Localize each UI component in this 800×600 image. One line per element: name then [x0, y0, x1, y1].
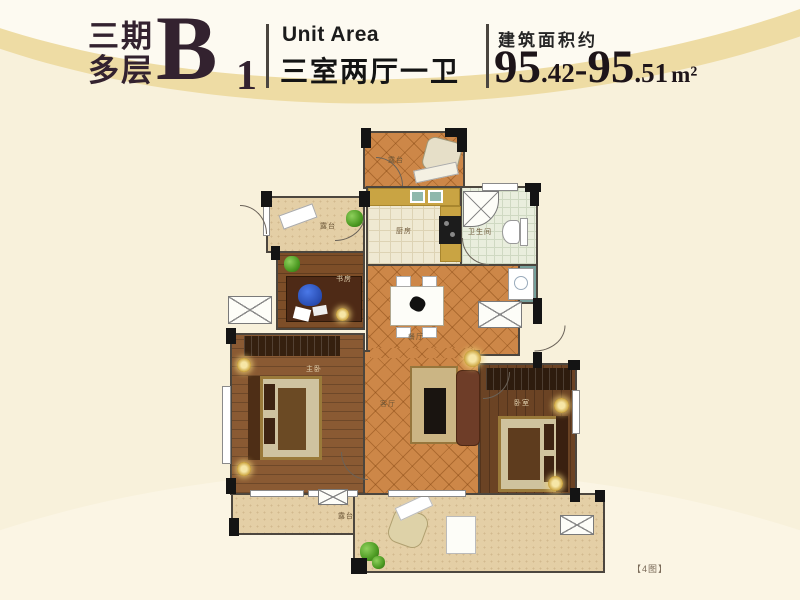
wall-corner: [570, 488, 580, 502]
entry-jamb: [533, 352, 542, 368]
wall-corner: [530, 186, 539, 206]
label-terrace-top: 露台: [388, 155, 404, 165]
hall-junction-patch: [370, 348, 474, 358]
study-plant-icon: [284, 256, 300, 272]
master-pillow-icon: [264, 384, 275, 410]
header-divider-2: [486, 24, 489, 88]
wall-corner: [261, 191, 272, 207]
label-master-bedroom: 主卧: [306, 364, 322, 374]
dining-chair4-icon: [422, 327, 437, 338]
header-divider-1: [266, 24, 269, 88]
bedroom2-lamp-icon: [554, 398, 569, 413]
master-window-south1: [250, 490, 304, 497]
study-bay-window: [228, 296, 272, 324]
unit-number: 1: [236, 52, 257, 100]
wall-corner: [595, 490, 605, 502]
wall-corner: [229, 518, 239, 536]
area-int2: 95: [587, 40, 634, 94]
bedroom2-window: [572, 390, 580, 434]
wall-corner: [361, 128, 371, 148]
wall-corner: [457, 130, 467, 152]
unit-layout: 三室两厅一卫: [280, 50, 460, 90]
page: 三期 多层 B 1 Unit Area 三室两厅一卫 建筑面积约 95 .42 …: [0, 0, 800, 600]
label-bathroom: 卫生间: [468, 227, 492, 237]
master-pillow2-icon: [264, 418, 275, 444]
toilet-tank-icon: [520, 218, 528, 246]
terrace-junction-patch: [355, 495, 365, 531]
image-count-note: 【4图】: [632, 562, 668, 575]
area-unit: m²: [671, 62, 697, 88]
dining-chair-icon: [396, 276, 411, 287]
washer-drum-icon: [514, 276, 528, 290]
area-value: 95 .42 - 95 .51 m²: [494, 40, 697, 94]
terrace-plant2-icon: [372, 556, 385, 569]
wall-corner: [226, 478, 236, 494]
living-lamp-icon: [464, 350, 481, 367]
label-bedroom2: 卧室: [514, 398, 530, 408]
area-dash: -: [575, 48, 588, 92]
terrace-mat-icon: [446, 516, 476, 554]
entry-door: [535, 326, 566, 352]
phase-line2: 多层: [88, 54, 154, 88]
master-wardrobe-icon: [244, 336, 340, 356]
entry-jamb: [533, 298, 542, 324]
label-kitchen: 厨房: [396, 226, 412, 236]
phase-title: 三期 多层: [88, 20, 154, 88]
wall-corner: [351, 558, 367, 574]
living-terrace-slider: [388, 490, 466, 497]
dining-chair2-icon: [422, 276, 437, 287]
master-bay-window: [222, 386, 231, 464]
terrace-window-box: [560, 515, 594, 535]
area-dec2: .51: [634, 58, 668, 89]
label-dining: 餐厅: [408, 332, 424, 342]
entry-cabinet-icon: [478, 301, 522, 328]
kitchen-sink1-icon: [410, 190, 425, 203]
stove-burner2-icon: [450, 232, 455, 237]
label-balcony-left: 露台: [320, 221, 336, 231]
unit-letter: B: [156, 2, 217, 94]
wall-corner: [226, 328, 236, 344]
unit-area-en: Unit Area: [282, 23, 379, 47]
area-int1: 95: [494, 40, 541, 94]
wall-corner: [359, 191, 370, 207]
master-lamp-icon: [237, 358, 251, 372]
bathroom-window: [482, 183, 518, 191]
master-lamp2-icon: [237, 462, 251, 476]
stove-burner-icon: [444, 221, 449, 226]
bedroom2-pillow-icon: [544, 424, 554, 450]
terrace-planter-box: [318, 489, 348, 505]
master-blanket-icon: [278, 388, 306, 450]
toilet-bowl-icon: [502, 220, 520, 244]
kitchen-stove-icon: [439, 216, 461, 244]
study-chair-icon: [298, 284, 322, 306]
wall-corner: [271, 246, 280, 260]
study-lamp-icon: [336, 308, 349, 321]
bedroom2-blanket-icon: [508, 428, 540, 480]
tv-icon: [424, 388, 446, 434]
label-terrace-bottom: 露台: [338, 511, 354, 521]
label-study: 书房: [336, 274, 352, 284]
label-living: 客厅: [380, 399, 396, 409]
bedroom2-lamp2-icon: [548, 476, 563, 491]
wall-corner: [568, 360, 580, 370]
phase-line1: 三期: [88, 20, 154, 54]
area-dec1: .42: [541, 58, 575, 89]
kitchen-sink2-icon: [428, 190, 443, 203]
sofa-icon: [456, 370, 480, 446]
